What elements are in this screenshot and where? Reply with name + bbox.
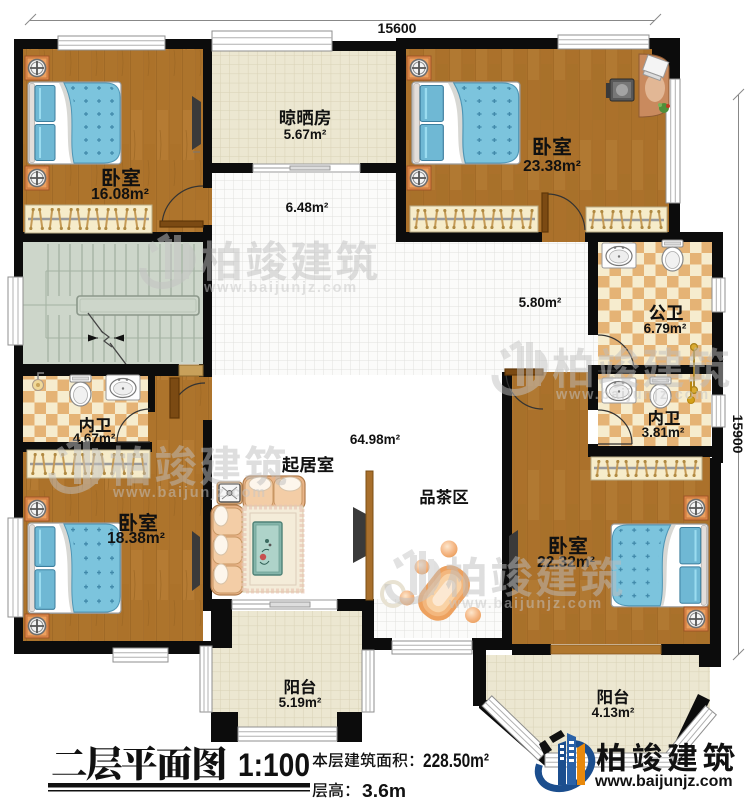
svg-text:16.08m²: 16.08m² — [91, 186, 149, 203]
svg-text:4.13m²: 4.13m² — [592, 705, 635, 720]
svg-text:www.baijunjz.com: www.baijunjz.com — [594, 773, 733, 790]
svg-text:5.19m²: 5.19m² — [279, 695, 322, 710]
svg-text:15600: 15600 — [378, 20, 417, 36]
svg-text:64.98m²: 64.98m² — [350, 432, 401, 447]
svg-text:1:100: 1:100 — [238, 747, 310, 783]
svg-text:4.67m²: 4.67m² — [73, 431, 116, 446]
svg-text:5.80m²: 5.80m² — [519, 295, 562, 310]
svg-text:5.67m²: 5.67m² — [284, 127, 327, 142]
svg-text:18.38m²: 18.38m² — [107, 530, 165, 547]
svg-text:23.38m²: 23.38m² — [523, 158, 581, 175]
svg-text:228.50m²: 228.50m² — [423, 751, 489, 772]
svg-text:3.81m²: 3.81m² — [642, 425, 685, 440]
svg-text:6.48m²: 6.48m² — [286, 200, 329, 215]
svg-text:6.79m²: 6.79m² — [644, 321, 687, 336]
svg-text:15900: 15900 — [730, 415, 746, 454]
svg-text:3.6m: 3.6m — [362, 781, 406, 801]
